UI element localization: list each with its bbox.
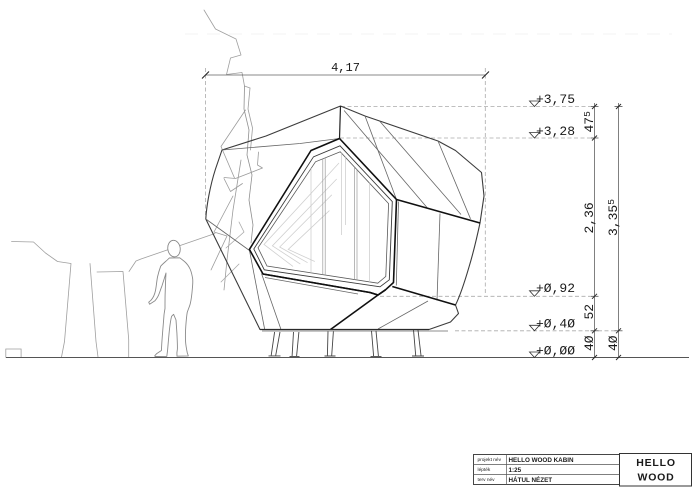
svg-text:4Ø: 4Ø: [582, 335, 597, 351]
svg-text:+3,75: +3,75: [536, 92, 575, 107]
svg-text:HELLO: HELLO: [636, 457, 676, 469]
svg-text:52: 52: [582, 304, 597, 320]
svg-text:+Ø,ØØ: +Ø,ØØ: [536, 344, 575, 359]
svg-text:+Ø,4Ø: +Ø,4Ø: [536, 317, 575, 332]
svg-text:terv név: terv név: [478, 477, 496, 483]
svg-text:4,17: 4,17: [331, 61, 360, 75]
svg-text:HELLO WOOD KABIN: HELLO WOOD KABIN: [509, 457, 575, 464]
svg-text:lépték: lépték: [478, 467, 491, 473]
svg-text:projekt név: projekt név: [478, 457, 502, 463]
svg-text:HÁTUL NÉZET: HÁTUL NÉZET: [509, 475, 553, 484]
svg-text:+Ø,92: +Ø,92: [536, 281, 575, 296]
svg-text:1:25: 1:25: [509, 467, 522, 474]
svg-text:+3,28: +3,28: [536, 124, 575, 139]
svg-text:WOOD: WOOD: [637, 471, 674, 483]
svg-text:2,36: 2,36: [582, 202, 597, 233]
svg-text:4Ø: 4Ø: [606, 335, 621, 351]
